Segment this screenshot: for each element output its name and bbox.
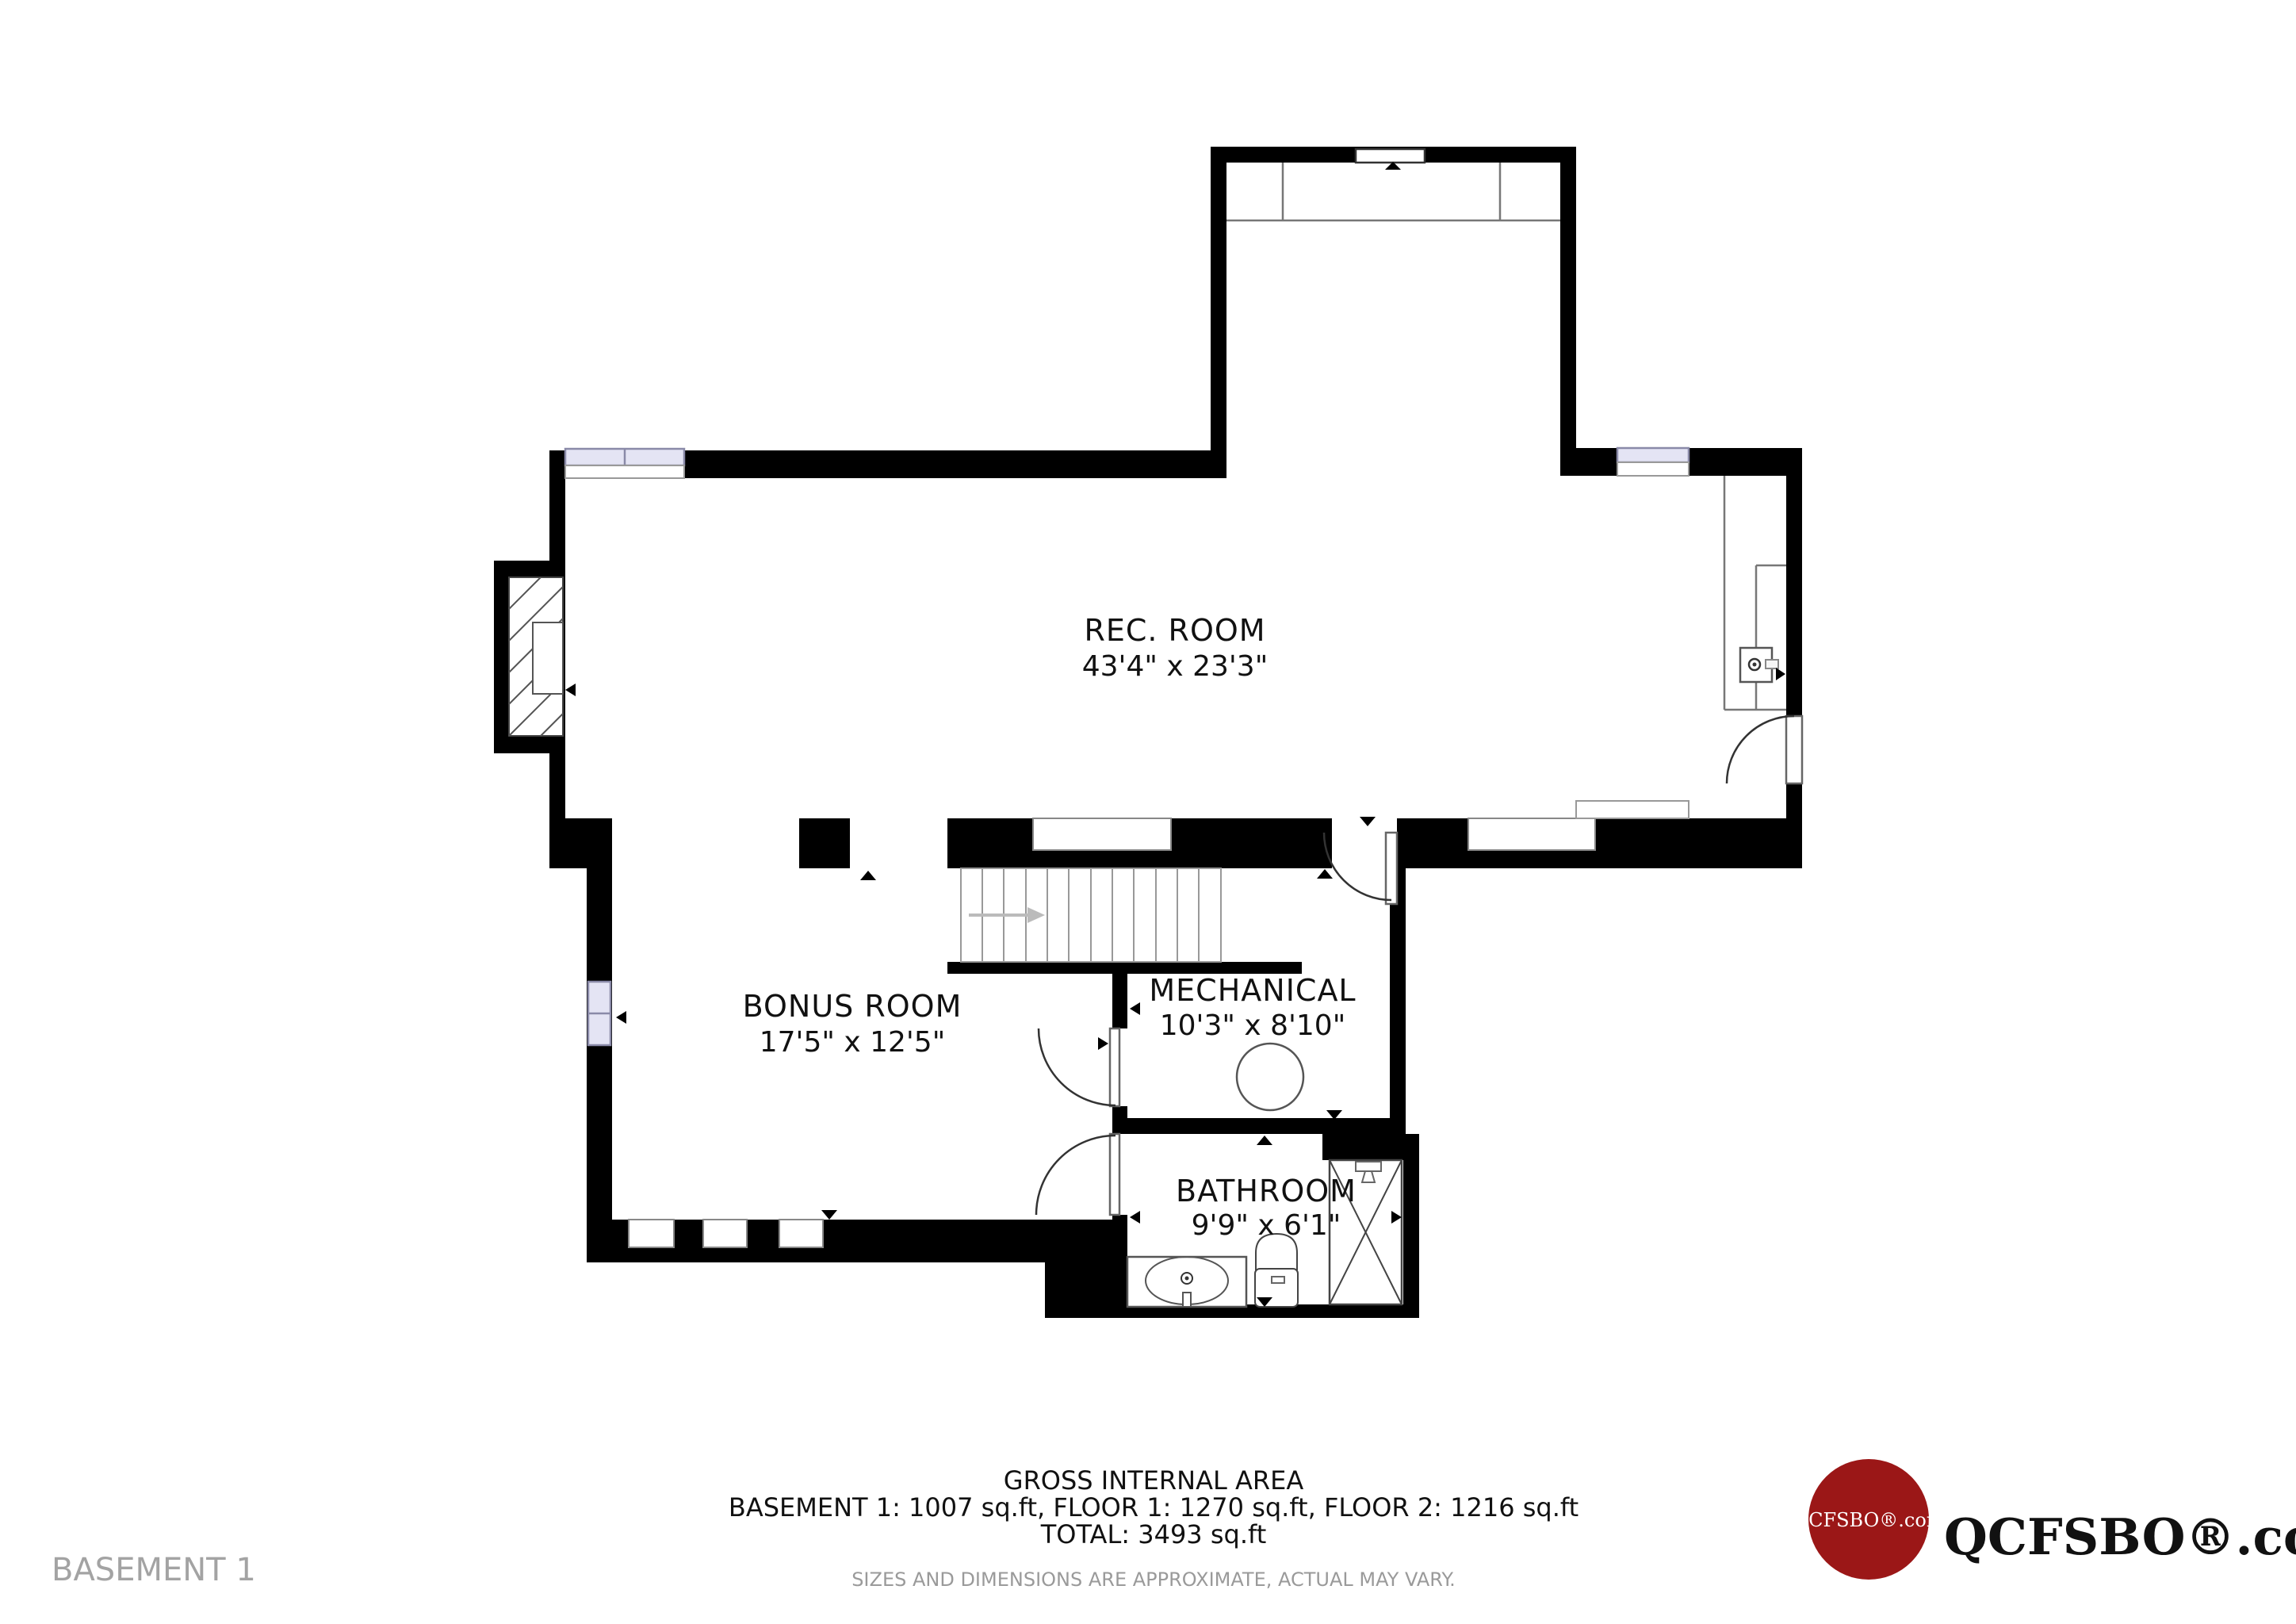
marker-up-icon <box>860 871 876 880</box>
rec-room-dims: 43'4" x 23'3" <box>1082 650 1269 683</box>
disclaimer-text: SIZES AND DIMENSIONS ARE APPROXIMATE, AC… <box>851 1568 1456 1591</box>
gross-area-breakdown: BASEMENT 1: 1007 sq.ft, FLOOR 1: 1270 sq… <box>729 1492 1578 1522</box>
gross-area-title: GROSS INTERNAL AREA <box>1004 1465 1304 1496</box>
walls <box>549 147 1802 1318</box>
wall-entry-left <box>1211 147 1226 478</box>
floor-plan-canvas: REC. ROOM 43'4" x 23'3" BONUS ROOM 17'5"… <box>0 0 2296 1624</box>
firebox <box>533 622 563 694</box>
window-bonus-bottom-1-icon <box>629 1220 674 1247</box>
toilet-icon <box>1255 1234 1298 1307</box>
footer: GROSS INTERNAL AREA BASEMENT 1: 1007 sq.… <box>52 1465 1578 1591</box>
bonus-room-dims: 17'5" x 12'5" <box>760 1026 946 1059</box>
marker-up-icon <box>1317 869 1333 879</box>
vanity-sink-icon <box>1127 1257 1246 1307</box>
wall-bath-right <box>1403 1134 1419 1318</box>
door-recroom-right-icon <box>1727 716 1802 783</box>
wall-stub-mechanical <box>1112 974 1127 1028</box>
water-heater-icon <box>1237 1044 1303 1110</box>
marker-down-icon <box>1360 817 1376 826</box>
wall-bottom-band-right <box>1397 818 1802 868</box>
wall-mech-bath-divider <box>1127 1118 1403 1134</box>
logo: QCFSBO®.com QCFSBO®.com <box>1793 1459 2296 1580</box>
window-bonus-bottom-3-icon <box>779 1220 823 1247</box>
wall-pillar <box>799 818 850 868</box>
floor-plan-page: REC. ROOM 43'4" x 23'3" BONUS ROOM 17'5"… <box>0 0 2296 1624</box>
wall-recroom-right-upper <box>1786 448 1802 716</box>
marker-left-icon <box>616 1011 626 1024</box>
marker-down-icon <box>821 1210 837 1220</box>
wall-mechanical-right <box>1390 868 1406 1134</box>
door-bonus-to-bathroom-icon <box>1036 1134 1119 1215</box>
marker-up-icon <box>1257 1136 1272 1145</box>
logo-badge-text: QCFSBO®.com <box>1793 1509 1944 1531</box>
marker-right-icon <box>1776 668 1785 680</box>
window-recroom-bottom-icon <box>1468 818 1595 850</box>
room-labels: REC. ROOM 43'4" x 23'3" BONUS ROOM 17'5"… <box>743 613 1357 1242</box>
entry-window <box>1356 149 1425 163</box>
logo-brand-text: QCFSBO®.com <box>1944 1507 2296 1566</box>
stair-opening <box>1033 818 1171 850</box>
wall-bath-corner <box>1045 1262 1112 1318</box>
mechanical-dims: 10'3" x 8'10" <box>1160 1009 1346 1042</box>
stair-direction-arrow-icon <box>969 907 1045 923</box>
window-recroom-topright-icon <box>1617 448 1689 476</box>
marker-left-icon <box>1130 1002 1140 1015</box>
bathroom-label: BATHROOM <box>1176 1174 1357 1208</box>
wall-bonus-left <box>587 868 612 1262</box>
marker-left-icon <box>565 684 576 696</box>
wall-entry-right <box>1560 147 1576 476</box>
bathroom-dims: 9'9" x 6'1" <box>1192 1209 1341 1242</box>
staircase <box>961 868 1221 962</box>
wall-stairs-bottom <box>947 962 1302 974</box>
door-bonus-to-mechanical-icon <box>1039 1028 1119 1106</box>
window-bonus-left-icon <box>588 982 610 1045</box>
window-bonus-bottom-2-icon <box>703 1220 747 1247</box>
baseboard-heater-icon <box>1576 801 1689 818</box>
wall-bath-notch <box>1322 1134 1403 1160</box>
gross-area-total: TOTAL: 3493 sq.ft <box>1040 1519 1266 1549</box>
rec-room-label: REC. ROOM <box>1084 613 1265 648</box>
marker-left-icon <box>1130 1211 1140 1224</box>
mechanical-label: MECHANICAL <box>1149 973 1356 1008</box>
wall-between-doors <box>1112 1106 1127 1134</box>
window-recroom-topleft-icon <box>565 449 684 478</box>
fireplace-icon <box>494 561 565 753</box>
floor-label: BASEMENT 1 <box>52 1552 256 1588</box>
wall-bottom-band-left <box>549 818 612 868</box>
bonus-room-label: BONUS ROOM <box>743 989 962 1024</box>
wall-below-bath-door <box>1112 1215 1127 1262</box>
door-recroom-to-mechanical-icon <box>1324 833 1397 904</box>
marker-right-icon <box>1098 1037 1108 1050</box>
